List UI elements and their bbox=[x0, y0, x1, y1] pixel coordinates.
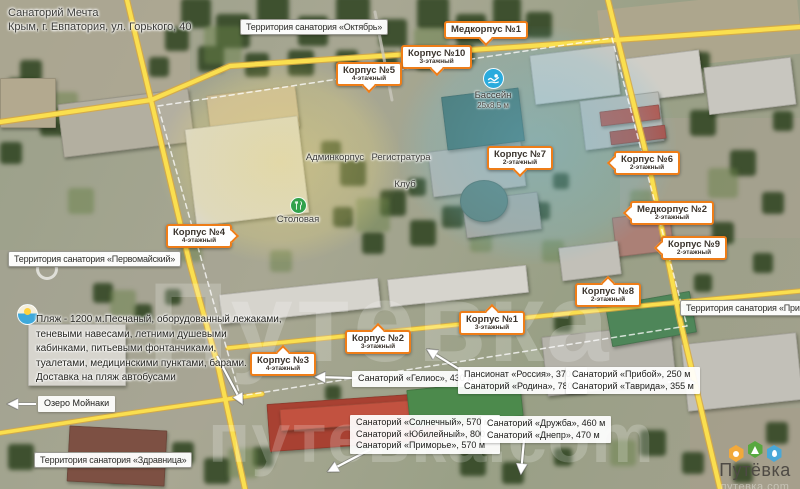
building-label-subtitle: 2-этажный bbox=[621, 164, 673, 171]
building-label: Корпус №34-этажный bbox=[250, 352, 316, 376]
distance-label: Санаторий «Дружба», 460 мСанаторий «Днеп… bbox=[481, 416, 611, 443]
building-label-subtitle: 2-этажный bbox=[668, 249, 720, 256]
map-text-label: Клуб bbox=[394, 179, 415, 190]
distance-label-line: Санаторий «Дружба», 460 м bbox=[487, 418, 605, 430]
map-canvas[interactable]: Путевка путевка.com Бассейн 25x8.5 м bbox=[0, 0, 800, 489]
distance-label-line: Санаторий «Днепр», 470 м bbox=[487, 430, 605, 442]
pool-label: Бассейн bbox=[475, 90, 512, 101]
tree-pin-icon bbox=[748, 441, 763, 458]
building-label: Медкорпус №22-этажный bbox=[630, 201, 714, 225]
building-label: Корпус №13-этажный bbox=[459, 311, 525, 335]
distance-label-line: Пансионат «Россия», 370 м bbox=[464, 369, 581, 381]
annotations-layer: Бассейн 25x8.5 м Пляж - 1200 м.Песчаный,… bbox=[0, 0, 800, 489]
distance-label: Санаторий «Прибой», 250 мСанаторий «Тавр… bbox=[566, 367, 700, 394]
distance-label-line: Санаторий «Родина», 780 м bbox=[464, 381, 581, 393]
territory-label: Территория санатория «Прибой» bbox=[680, 300, 800, 316]
pool-size-label: 25x8.5 м bbox=[477, 101, 509, 110]
restaurant-icon bbox=[290, 197, 307, 214]
map-arrow bbox=[521, 440, 524, 473]
beach-description-line: Пляж - 1200 м.Песчаный, оборудованный ле… bbox=[36, 313, 282, 328]
building-label: Медкорпус №1 bbox=[444, 21, 528, 39]
building-label: Корпус №92-этажный bbox=[661, 236, 727, 260]
territory-label: Территория санатория «Здравница» bbox=[34, 452, 192, 468]
distance-label: Санаторий «Солнечный», 570 мСанаторий «Ю… bbox=[350, 415, 500, 454]
map-arrow bbox=[316, 377, 352, 378]
page-subtitle: Крым, г. Евпатория, ул. Горького, 40 bbox=[8, 20, 192, 34]
territory-label: Территория санатория «Октябрь» bbox=[240, 19, 388, 35]
distance-label-line: Санаторий «Гелиос», 430 м bbox=[358, 373, 473, 385]
map-title-block: Санаторий Мечта Крым, г. Евпатория, ул. … bbox=[8, 6, 192, 34]
logo-pins bbox=[700, 442, 800, 462]
logo-brand-text: Путёвка bbox=[700, 460, 800, 481]
distance-label-line: Санаторий «Солнечный», 570 м bbox=[356, 417, 494, 429]
building-label: Корпус №103-этажный bbox=[401, 45, 472, 69]
beach-description-line: кабинками, питьевыми фонтанчиками, bbox=[36, 342, 282, 357]
building-label: Корпус №54-этажный bbox=[336, 62, 402, 86]
building-label: Корпус №72-этажный bbox=[487, 146, 553, 170]
map-text-label: Столовая bbox=[277, 214, 319, 225]
beach-description-line: туалетами, медицинскими пунктами, барами… bbox=[36, 357, 282, 372]
map-text-label: Админкорпус bbox=[306, 152, 364, 163]
building-label-subtitle: 2-этажный bbox=[582, 296, 634, 303]
page-title: Санаторий Мечта bbox=[8, 6, 192, 20]
putevka-logo: Путёвка путевка.com bbox=[700, 442, 800, 489]
building-label-subtitle: 2-этажный bbox=[637, 214, 707, 221]
beach-icon bbox=[17, 304, 38, 325]
pool-icon bbox=[483, 68, 504, 89]
beach-description-line: Доставка на пляж автобусами bbox=[36, 371, 282, 386]
building-label-subtitle: 3-этажный bbox=[352, 343, 404, 350]
distance-label-line: Санаторий «Таврида», 355 м bbox=[572, 381, 694, 393]
building-label-subtitle: 4-этажный bbox=[173, 237, 225, 244]
beach-description: Пляж - 1200 м.Песчаный, оборудованный ле… bbox=[36, 313, 282, 386]
distance-label-line: Санаторий «Приморье», 570 м bbox=[356, 440, 494, 452]
map-text-label: Регистратура bbox=[371, 152, 430, 163]
building-label-subtitle: 3-этажный bbox=[466, 324, 518, 331]
building-label: Корпус №82-этажный bbox=[575, 283, 641, 307]
territory-label: Территория санатория «Первомайский» bbox=[8, 251, 181, 267]
logo-domain-text: путевка.com bbox=[700, 481, 800, 489]
building-label: Корпус №44-этажный bbox=[166, 224, 232, 248]
building-label: Корпус №62-этажный bbox=[614, 151, 680, 175]
distance-label-line: Санаторий «Прибой», 250 м bbox=[572, 369, 694, 381]
beach-description-line: теневыми навесами, летними душевыми bbox=[36, 328, 282, 343]
building-label: Корпус №23-этажный bbox=[345, 330, 411, 354]
distance-label-line: Озеро Мойнаки bbox=[44, 398, 109, 410]
map-arrow bbox=[428, 350, 462, 371]
distance-label-line: Санаторий «Юбилейный», 800 м bbox=[356, 429, 494, 441]
distance-label: Озеро Мойнаки bbox=[38, 396, 115, 412]
building-label-subtitle: 4-этажный bbox=[257, 365, 309, 372]
